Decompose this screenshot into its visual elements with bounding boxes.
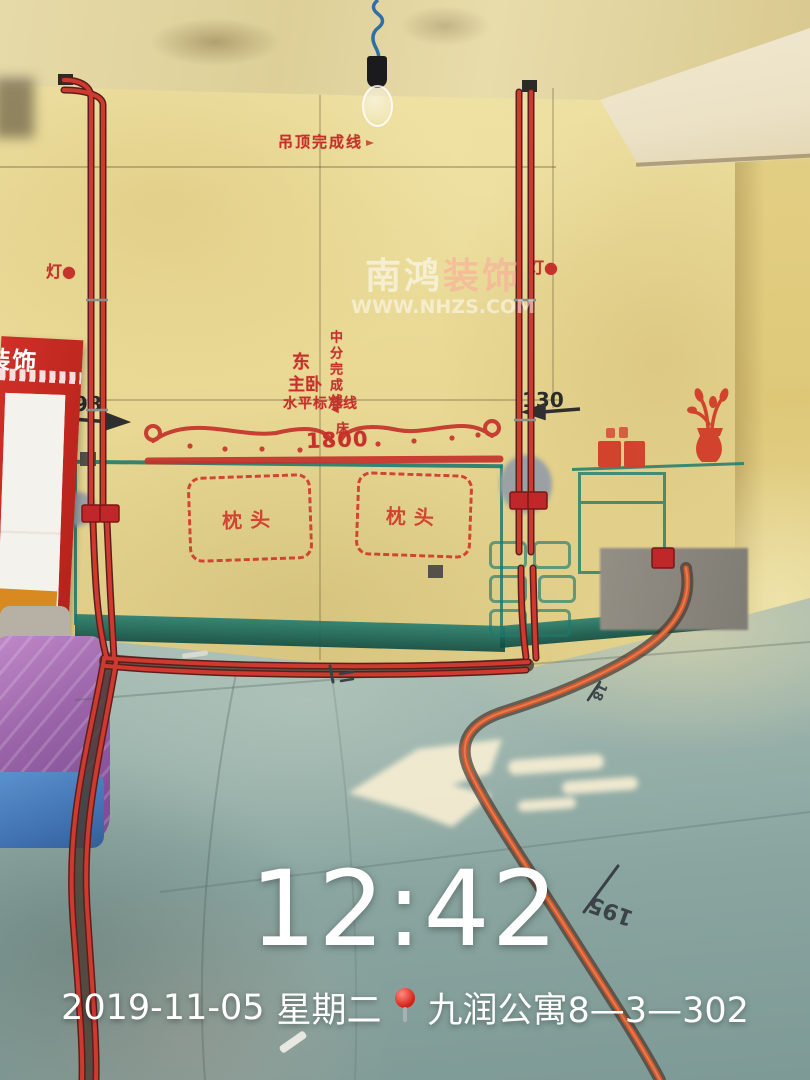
watermark-url: WWW.NHZS.COM [348, 297, 538, 319]
company-watermark: 南鸿装饰 WWW.NHZS.COM [348, 256, 538, 319]
renovation-site-photo: 吊顶完成线 灯● 灯● 中分完成线 ◀ 东 主卧 水平标准线 98 130 床 … [0, 0, 810, 1080]
location-text: 九润公寓8—3—302 [428, 982, 749, 1033]
time-overlay: 12:42 [0, 848, 810, 970]
watermark-brand: 南鸿装饰 [348, 256, 538, 297]
date-location-overlay: 2019-11-05 星期二 九润公寓8—3—302 [0, 982, 810, 1033]
location-pin-icon [394, 988, 416, 1028]
weekday-text: 星期二 [277, 982, 382, 1033]
date-text: 2019-11-05 [61, 988, 264, 1028]
